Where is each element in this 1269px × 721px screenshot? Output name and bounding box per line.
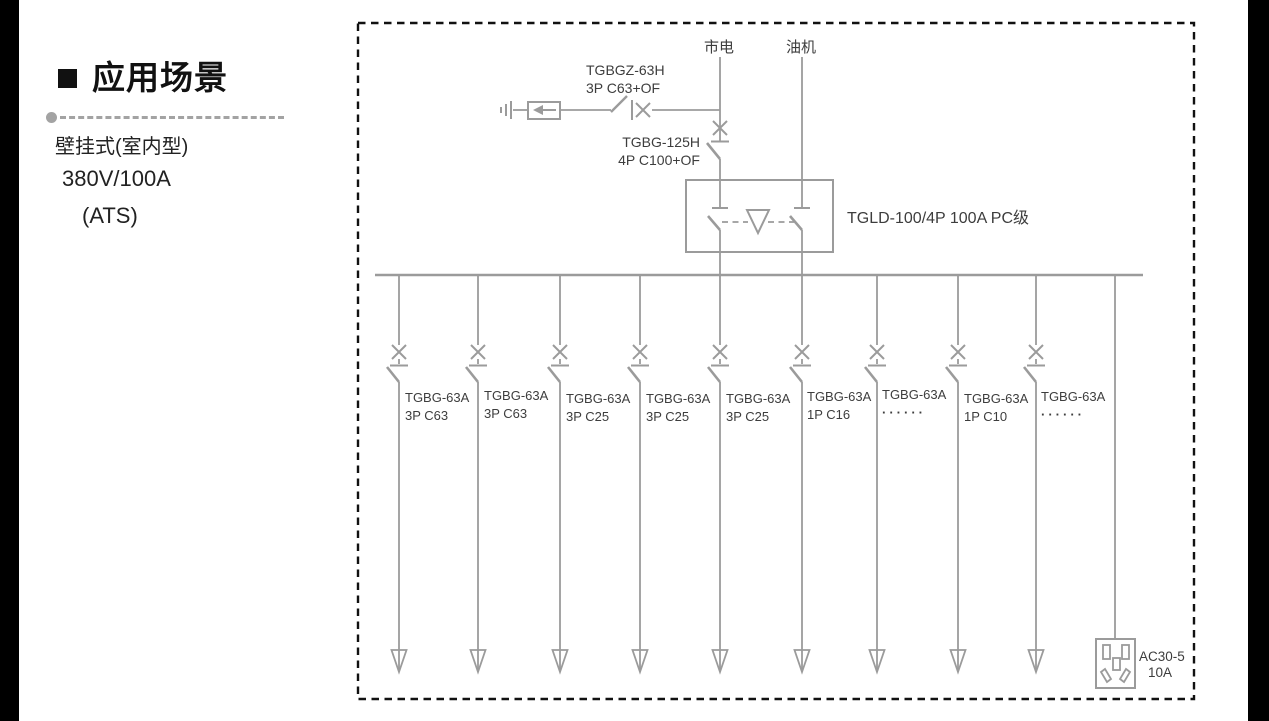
- ats-interlock-icon: [747, 210, 769, 233]
- feeder-3: TGBG-63A 3P C25: [548, 276, 631, 672]
- spd-arrow-icon: [533, 105, 543, 115]
- feeder-model: TGBG-63A: [1041, 389, 1106, 404]
- feeder-model: TGBG-63A: [807, 389, 872, 404]
- feeder-spec: 3P C25: [726, 409, 769, 424]
- ats-left-blade: [708, 216, 720, 230]
- feeder-breaker-icon: [387, 276, 408, 672]
- feeder-breaker-icon: [1024, 276, 1045, 672]
- spd-branch: [501, 96, 720, 120]
- feeder-spec: 3P C25: [646, 409, 689, 424]
- generator-label: 油机: [786, 39, 816, 56]
- feeder-breaker-icon: [946, 276, 967, 672]
- spd-breaker-spec: 3P C63+OF: [586, 80, 660, 96]
- socket-model: AC30-5: [1139, 649, 1185, 664]
- feeder-spec: 1P C16: [807, 407, 850, 422]
- feeder-model: TGBG-63A: [646, 391, 711, 406]
- feeder-breaker-icon: [466, 276, 487, 672]
- power-socket-icon: [1096, 639, 1135, 688]
- feeder-spec: ······: [1041, 407, 1085, 422]
- feeder-spec: 3P C63: [405, 408, 448, 423]
- ats-switch: [686, 180, 833, 274]
- feeder-6: TGBG-63A 1P C16: [790, 276, 872, 672]
- feeder-breaker-icon: [548, 276, 569, 672]
- spd-breaker-x-icon: [636, 103, 650, 117]
- spd-breaker-blade: [611, 96, 627, 112]
- feeder-spec: 3P C25: [566, 409, 609, 424]
- diagram-dashed-frame: [358, 23, 1194, 699]
- feeder-1: TGBG-63A 3P C63: [387, 276, 470, 672]
- spd-breaker-model: TGBGZ-63H: [586, 62, 665, 78]
- incoming-lines: [707, 57, 802, 207]
- feeder-breaker-icon: [628, 276, 649, 672]
- feeder-spec: ······: [882, 405, 926, 420]
- feeder-model: TGBG-63A: [566, 391, 631, 406]
- ats-right-blade: [790, 216, 802, 230]
- feeder-breaker-icon: [865, 276, 886, 672]
- main-breaker-blade: [707, 143, 720, 159]
- feeder-breaker-icon: [708, 276, 729, 672]
- feeder-9: TGBG-63A ······: [1024, 276, 1106, 672]
- feeder-model: TGBG-63A: [882, 387, 947, 402]
- ground-icon: [501, 101, 511, 119]
- socket-branch: [1096, 276, 1135, 688]
- feeder-breaker-icon: [790, 276, 811, 672]
- feeder-5: TGBG-63A 3P C25: [708, 276, 791, 672]
- feeder-spec: 1P C10: [964, 409, 1007, 424]
- feeder-spec: 3P C63: [484, 406, 527, 421]
- feeder-model: TGBG-63A: [484, 388, 549, 403]
- feeder-8: TGBG-63A 1P C10: [946, 276, 1029, 672]
- feeder-model: TGBG-63A: [405, 390, 470, 405]
- circuit-diagram: TGBG-63A 3P C63 TGBG-63A 3P C63 TGBG-63A…: [0, 0, 1269, 721]
- socket-rating: 10A: [1148, 665, 1172, 680]
- feeder-model: TGBG-63A: [726, 391, 791, 406]
- feeder-4: TGBG-63A 3P C25: [628, 276, 711, 672]
- mains-label: 市电: [704, 39, 734, 56]
- feeder-model: TGBG-63A: [964, 391, 1029, 406]
- main-breaker-spec: 4P C100+OF: [618, 152, 700, 168]
- ats-label: TGLD-100/4P 100A PC级: [847, 209, 1029, 227]
- feeder-2: TGBG-63A 3P C63: [466, 276, 549, 672]
- feeder-7: TGBG-63A ······: [865, 276, 947, 672]
- main-breaker-model: TGBG-125H: [622, 134, 700, 150]
